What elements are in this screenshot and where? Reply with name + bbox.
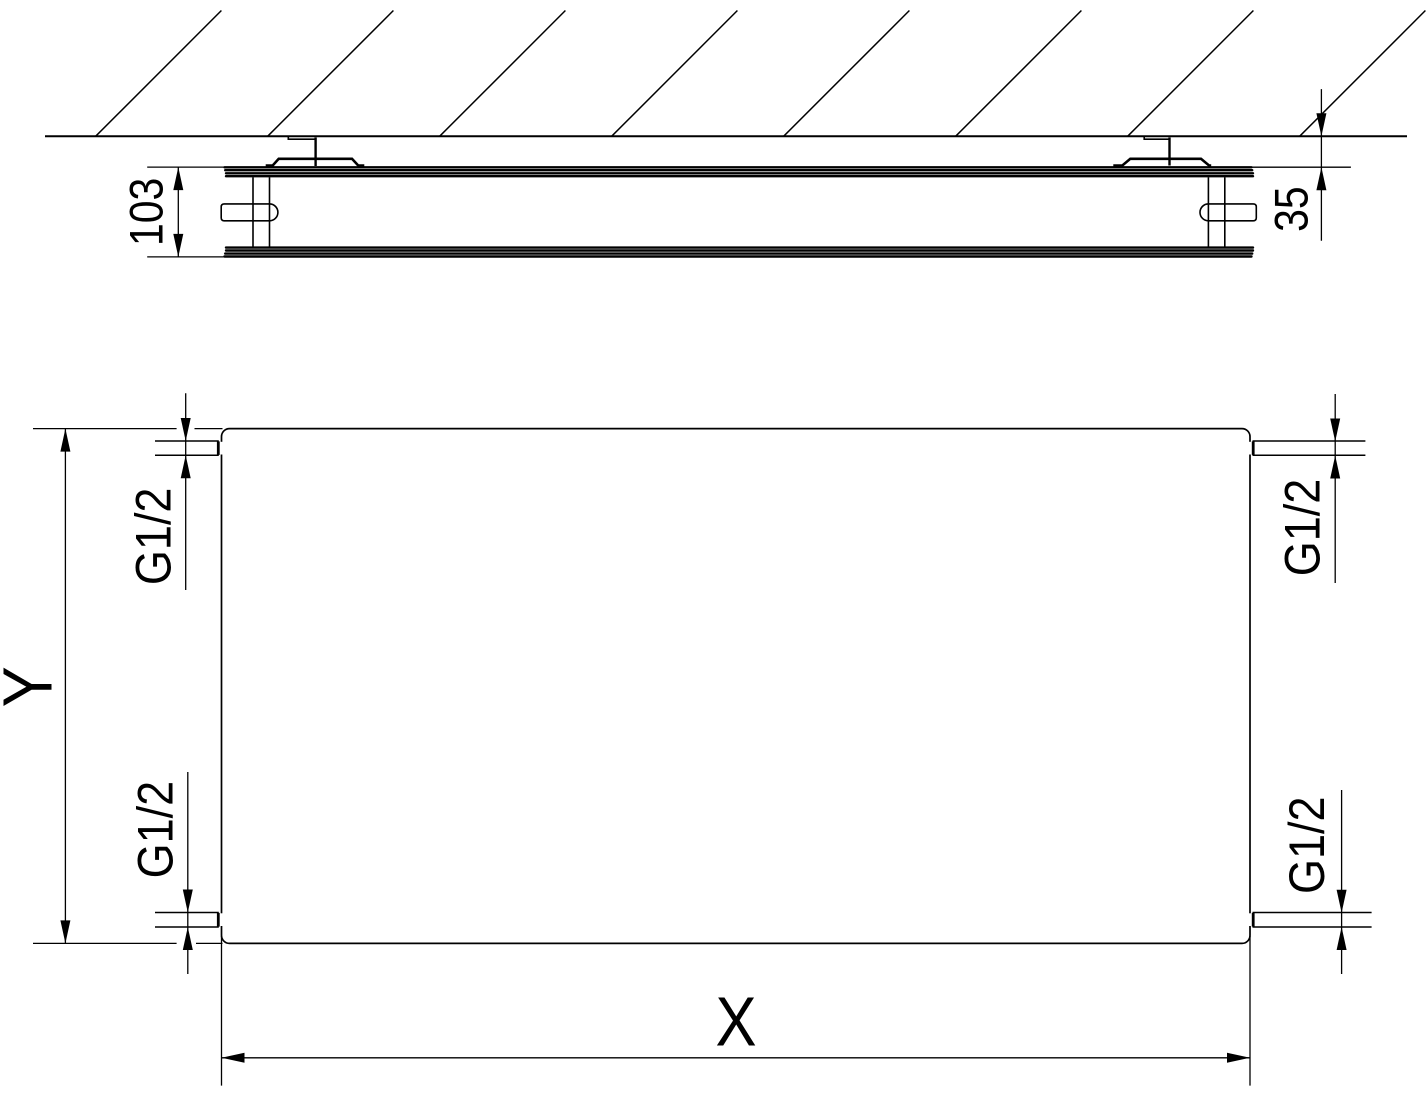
svg-text:G1/2: G1/2 <box>126 488 182 586</box>
svg-text:G1/2: G1/2 <box>1275 479 1331 577</box>
svg-text:103: 103 <box>121 178 173 246</box>
svg-text:G1/2: G1/2 <box>128 781 184 879</box>
svg-text:G1/2: G1/2 <box>1280 796 1336 894</box>
svg-text:35: 35 <box>1266 186 1318 231</box>
svg-text:Y: Y <box>0 666 66 707</box>
svg-text:X: X <box>715 982 756 1061</box>
